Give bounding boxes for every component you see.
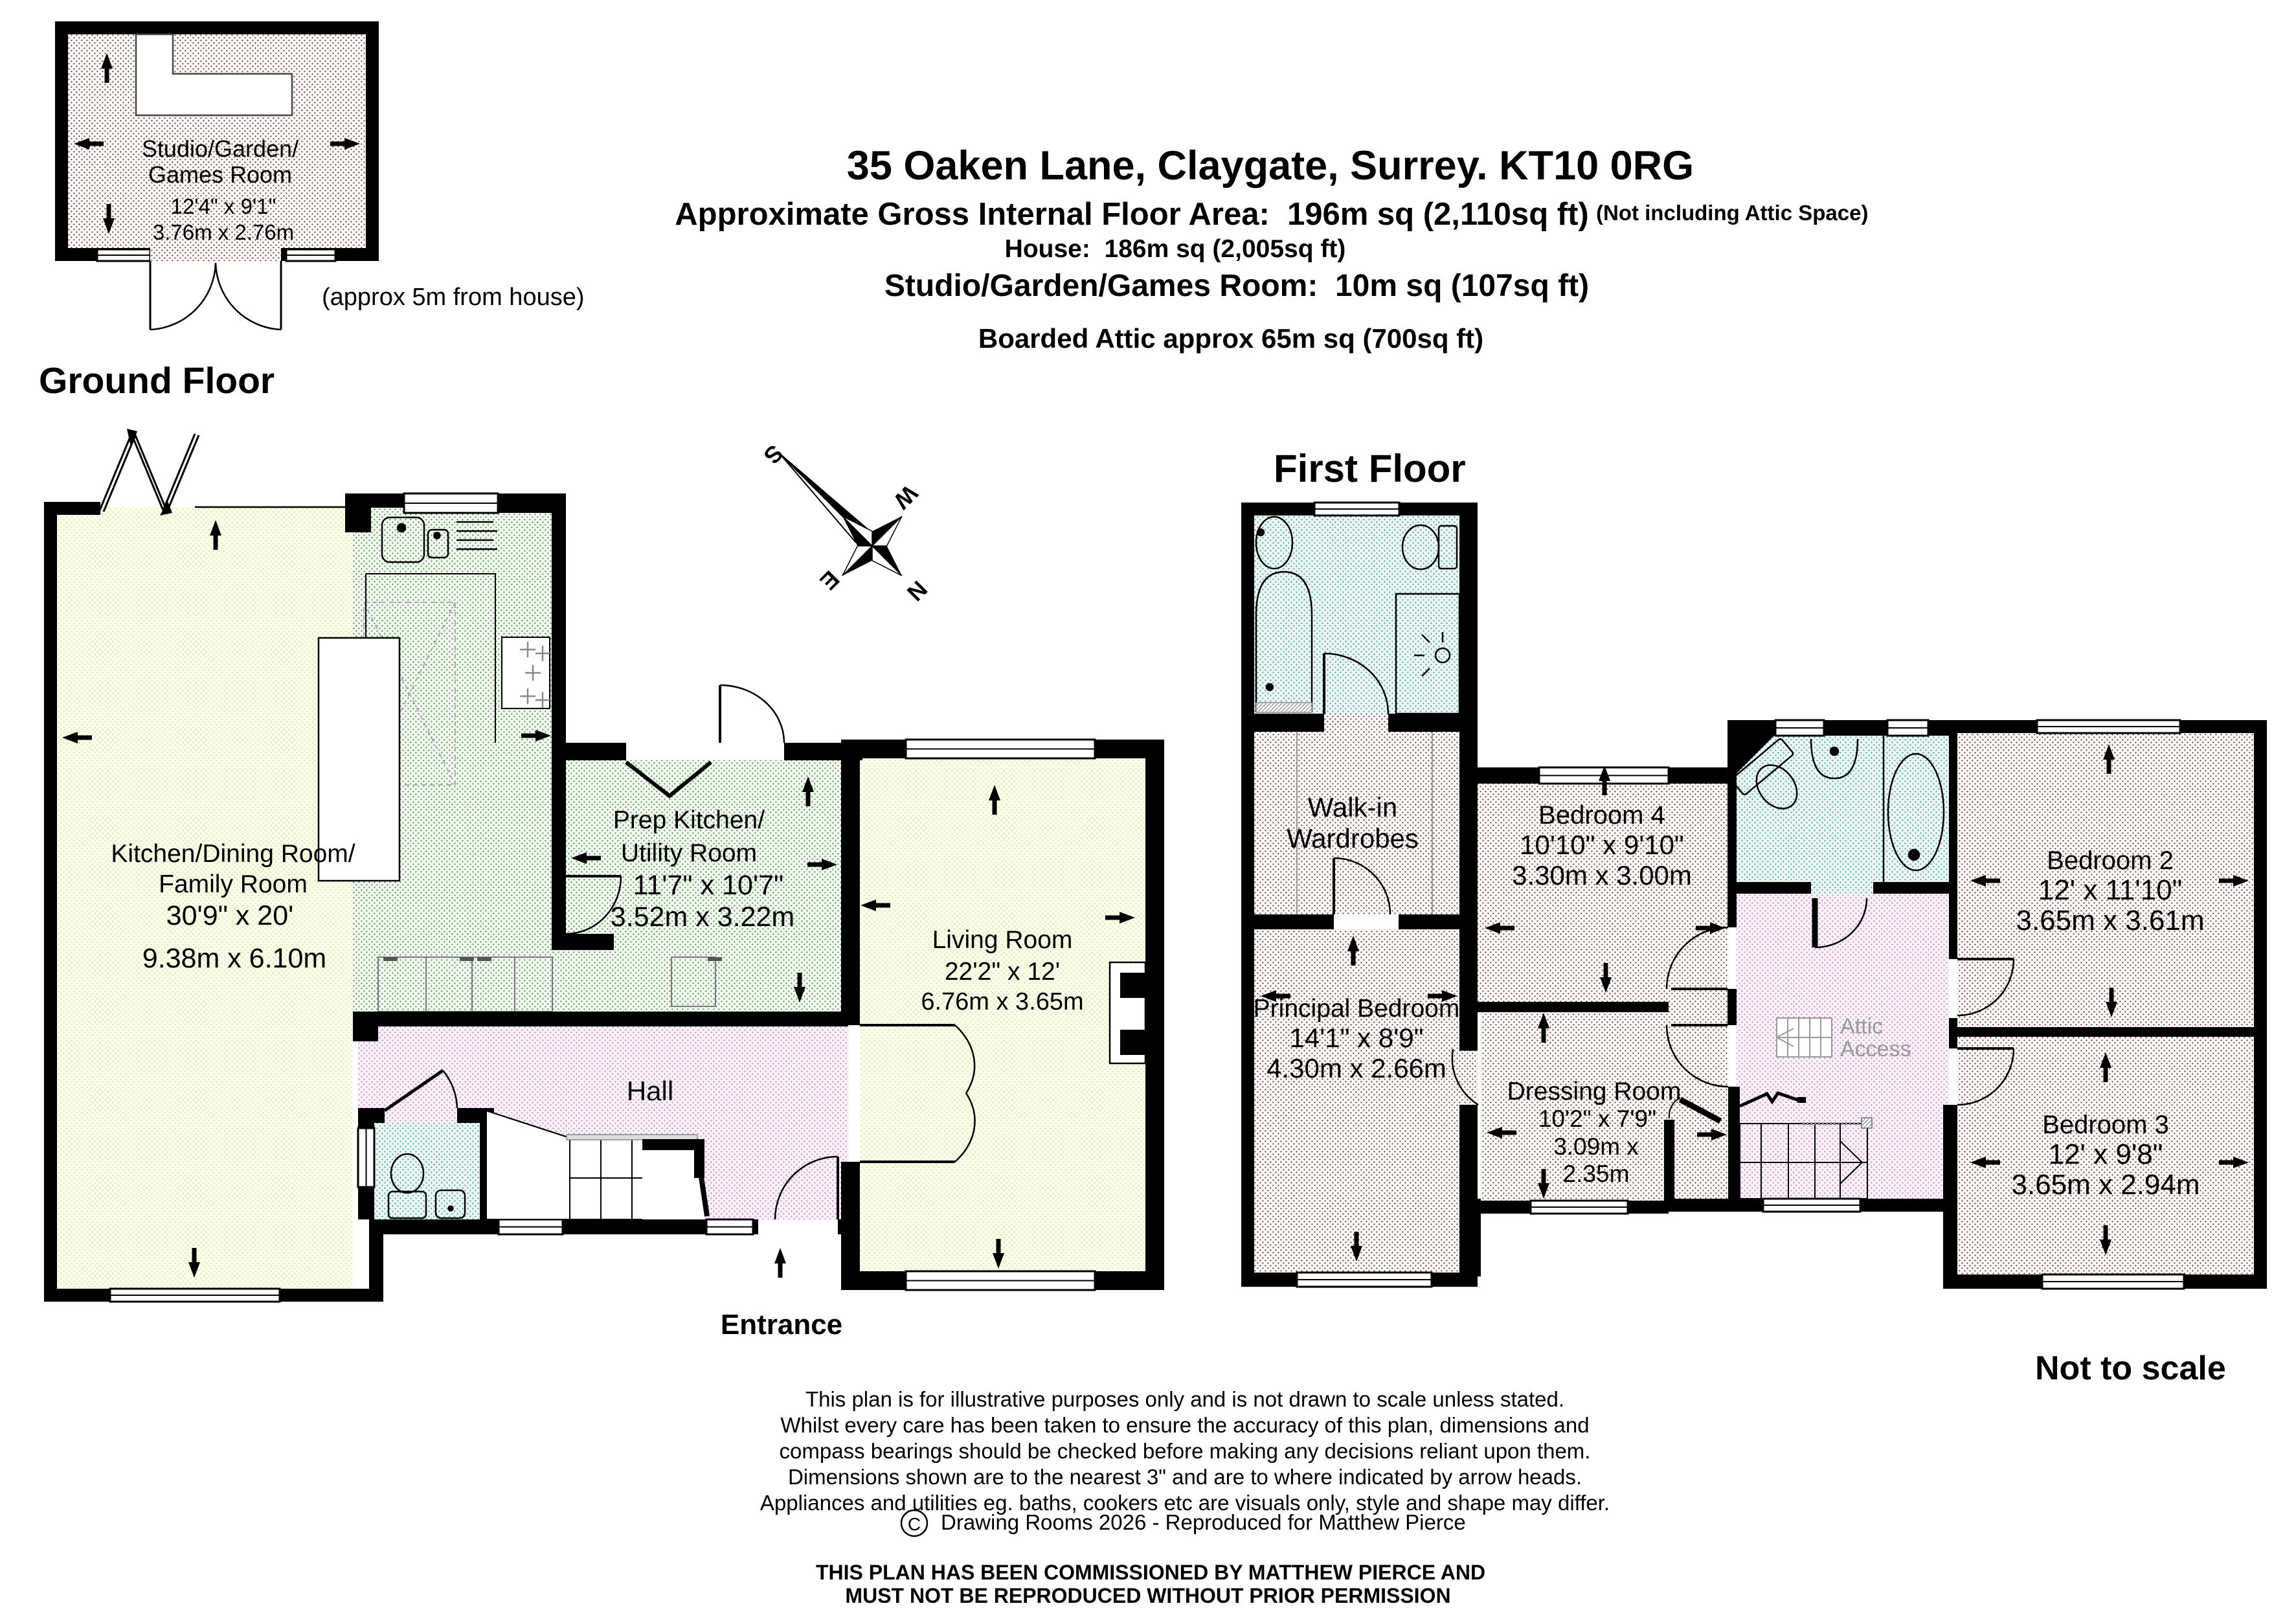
svg-text:9.38m x 6.10m: 9.38m x 6.10m <box>142 943 326 974</box>
svg-text:Bedroom 2: Bedroom 2 <box>2047 846 2174 875</box>
svg-text:Hall: Hall <box>627 1076 673 1106</box>
svg-text:2.35m: 2.35m <box>1563 1160 1630 1187</box>
svg-text:4.30m x 2.66m: 4.30m x 2.66m <box>1266 1053 1446 1083</box>
svg-text:MUST NOT BE REPRODUCED WITHOUT: MUST NOT BE REPRODUCED WITHOUT PRIOR PER… <box>845 1584 1450 1607</box>
svg-text:(approx 5m from house): (approx 5m from house) <box>322 284 585 311</box>
svg-text:22'2" x 12': 22'2" x 12' <box>945 958 1060 986</box>
svg-text:Access: Access <box>1840 1037 1911 1061</box>
svg-text:House: 186m sq (2,005sq ft): House: 186m sq (2,005sq ft) <box>1005 235 1346 263</box>
svg-text:Ground Floor: Ground Floor <box>39 360 275 402</box>
svg-text:Attic: Attic <box>1840 1014 1883 1039</box>
svg-text:12'4" x 9'1": 12'4" x 9'1" <box>171 194 276 218</box>
svg-text:S: S <box>759 440 789 470</box>
svg-text:Kitchen/Dining Room/: Kitchen/Dining Room/ <box>111 840 355 868</box>
svg-text:12' x 11'10": 12' x 11'10" <box>2038 874 2182 906</box>
svg-text:W: W <box>888 480 923 514</box>
svg-text:Bedroom 4: Bedroom 4 <box>1538 801 1665 830</box>
svg-text:Bedroom 3: Bedroom 3 <box>2042 1111 2169 1139</box>
svg-text:11'7" x 10'7": 11'7" x 10'7" <box>633 870 784 901</box>
svg-text:THIS PLAN HAS BEEN COMMISSIONE: THIS PLAN HAS BEEN COMMISSIONED BY MATTH… <box>816 1561 1485 1584</box>
svg-text:Walk-in: Walk-in <box>1308 792 1397 822</box>
svg-text:C: C <box>908 1514 921 1534</box>
svg-text:Approximate Gross Internal Flo: Approximate Gross Internal Floor Area: 1… <box>675 197 1588 232</box>
svg-text:Games Room: Games Room <box>148 161 292 188</box>
svg-text:Wardrobes: Wardrobes <box>1287 823 1419 854</box>
svg-text:12' x 9'8": 12' x 9'8" <box>2049 1138 2163 1170</box>
svg-text:6.76m x 3.65m: 6.76m x 3.65m <box>921 988 1083 1015</box>
svg-text:10'2" x 7'9": 10'2" x 7'9" <box>1538 1105 1656 1132</box>
svg-text:First Floor: First Floor <box>1274 447 1466 490</box>
svg-text:3.65m x 2.94m: 3.65m x 2.94m <box>2011 1169 2200 1201</box>
svg-text:N: N <box>902 576 932 606</box>
svg-text:Studio/Garden/: Studio/Garden/ <box>142 135 298 162</box>
svg-text:Principal Bedroom: Principal Bedroom <box>1254 995 1460 1023</box>
svg-text:compass bearings should be che: compass bearings should be checked befor… <box>780 1439 1591 1463</box>
svg-text:Utility Room: Utility Room <box>621 839 757 867</box>
svg-text:30'9" x 20': 30'9" x 20' <box>166 900 294 931</box>
svg-text:(Not including Attic Space): (Not including Attic Space) <box>1596 201 1868 225</box>
svg-text:This plan is for illustrative: This plan is for illustrative purposes o… <box>805 1387 1564 1411</box>
svg-text:14'1" x 8'9": 14'1" x 8'9" <box>1290 1023 1424 1053</box>
svg-text:Drawing Rooms 2026 - Reproduce: Drawing Rooms 2026 - Reproduced for Matt… <box>941 1510 1466 1534</box>
svg-text:Studio/Garden/Games Room: 10m: Studio/Garden/Games Room: 10m sq (107sq … <box>884 269 1589 303</box>
svg-text:Dressing Room: Dressing Room <box>1507 1078 1682 1105</box>
svg-text:Whilst every care has been tak: Whilst every care has been taken to ensu… <box>780 1413 1589 1437</box>
svg-text:Prep Kitchen/: Prep Kitchen/ <box>613 806 765 834</box>
svg-text:3.76m x 2.76m: 3.76m x 2.76m <box>153 220 294 244</box>
svg-text:Family Room: Family Room <box>159 870 308 898</box>
svg-text:10'10" x 9'10": 10'10" x 9'10" <box>1520 830 1684 860</box>
svg-text:Boarded Attic approx 65m sq (7: Boarded Attic approx 65m sq (700sq ft) <box>978 323 1483 354</box>
svg-text:Living Room: Living Room <box>932 926 1073 954</box>
svg-text:Not to scale: Not to scale <box>2035 1350 2226 1387</box>
svg-text:35 Oaken Lane, Claygate, Surre: 35 Oaken Lane, Claygate, Surrey. KT10 0R… <box>847 143 1694 188</box>
svg-text:3.65m x 3.61m: 3.65m x 3.61m <box>2016 905 2204 936</box>
svg-text:Dimensions shown are to the ne: Dimensions shown are to the nearest 3" a… <box>788 1465 1582 1489</box>
svg-text:3.30m x 3.00m: 3.30m x 3.00m <box>1512 860 1692 890</box>
svg-text:3.52m x 3.22m: 3.52m x 3.22m <box>611 901 794 933</box>
svg-text:3.09m x: 3.09m x <box>1553 1133 1639 1160</box>
svg-text:Entrance: Entrance <box>721 1309 842 1341</box>
svg-text:E: E <box>815 565 845 595</box>
